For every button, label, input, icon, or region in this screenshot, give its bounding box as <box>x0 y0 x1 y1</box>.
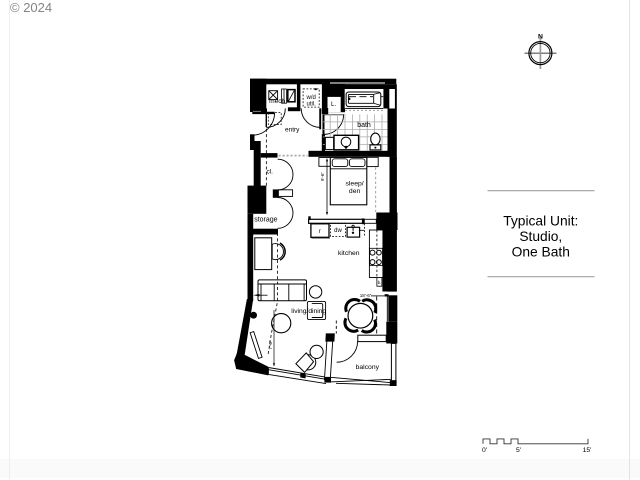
svg-text:5': 5' <box>516 447 521 454</box>
svg-text:One Bath: One Bath <box>512 245 570 260</box>
svg-text:w/d: w/d <box>306 95 316 101</box>
svg-text:b.: b. <box>378 280 382 285</box>
svg-text:r: r <box>319 229 321 235</box>
svg-text:9'-6": 9'-6" <box>320 172 325 182</box>
svg-text:N: N <box>538 34 543 41</box>
svg-text:Studio,: Studio, <box>519 229 562 244</box>
svg-text:den: den <box>349 188 361 195</box>
svg-text:util.: util. <box>307 102 317 108</box>
svg-text:L.: L. <box>331 101 336 108</box>
svg-text:© 2024: © 2024 <box>10 0 52 15</box>
svg-text:15': 15' <box>583 447 592 454</box>
svg-text:0': 0' <box>482 447 487 454</box>
svg-text:kitchen: kitchen <box>338 250 360 257</box>
svg-text:living/dining: living/dining <box>291 308 326 315</box>
svg-text:balcony: balcony <box>356 364 380 371</box>
svg-text:Typical Unit:: Typical Unit: <box>503 214 578 229</box>
svg-text:cl.: cl. <box>266 169 273 176</box>
svg-text:bath: bath <box>357 122 371 129</box>
svg-text:mech: mech <box>269 98 285 105</box>
svg-text:dw: dw <box>334 228 342 234</box>
svg-text:sleep/: sleep/ <box>346 181 364 188</box>
svg-text:18'-6": 18'-6" <box>360 293 372 298</box>
svg-text:storage: storage <box>254 216 277 223</box>
svg-text:entry: entry <box>285 127 300 134</box>
